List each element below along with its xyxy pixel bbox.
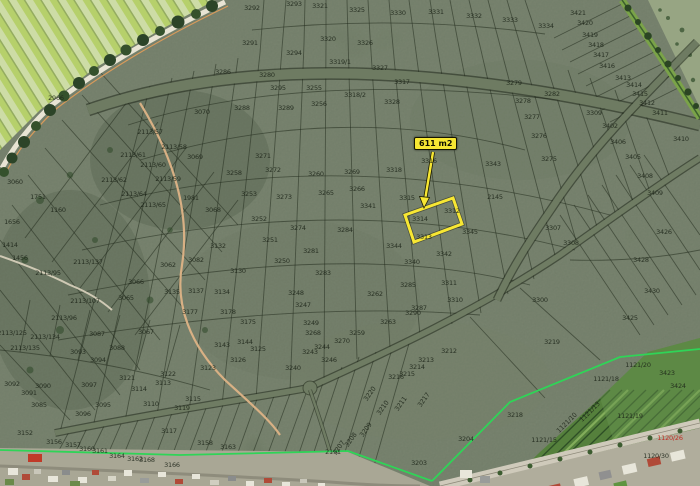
red-roof-building — [28, 454, 42, 462]
area-measurement-label: 611 m2 — [414, 137, 457, 150]
cadastral-map[interactable]: 3292329333213325333033313332333333343291… — [0, 0, 700, 486]
map-image — [0, 0, 700, 486]
